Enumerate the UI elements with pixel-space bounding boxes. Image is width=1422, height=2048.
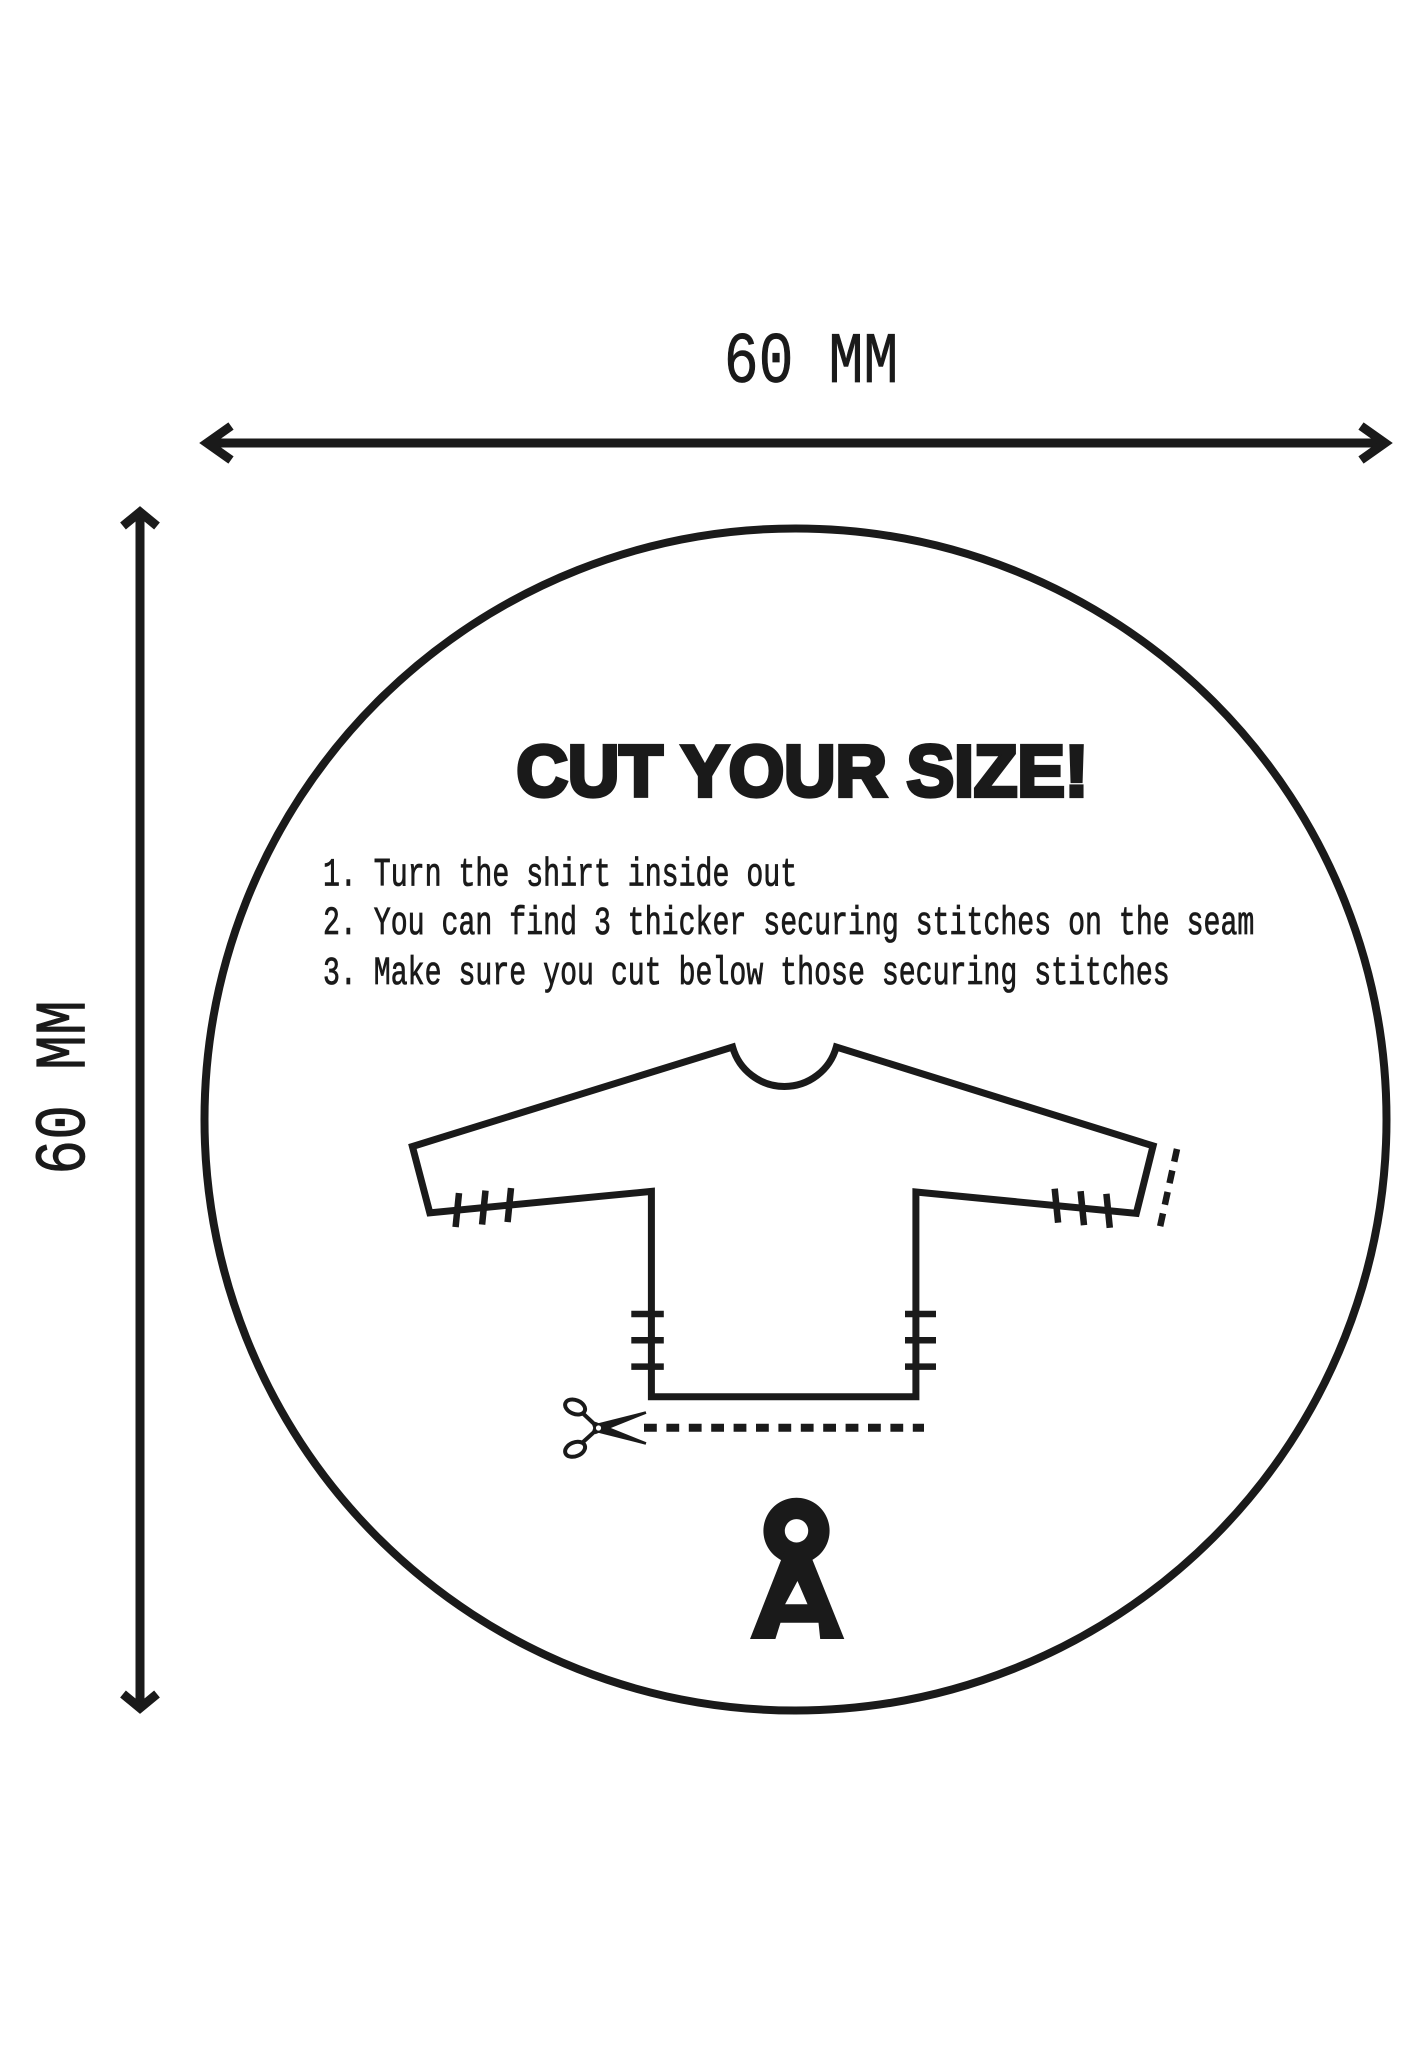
svg-text:3. Make sure you cut below tho: 3. Make sure you cut below those securin… [323,952,1170,997]
svg-text:1. Turn the shirt inside out: 1. Turn the shirt inside out [323,853,797,898]
svg-text:60 MM: 60 MM [724,323,899,404]
svg-text:60 MM: 60 MM [25,1000,106,1175]
svg-text:2. You can find 3 thicker secu: 2. You can find 3 thicker securing stitc… [323,902,1254,947]
svg-text:CUT YOUR SIZE!: CUT YOUR SIZE! [516,732,1088,812]
